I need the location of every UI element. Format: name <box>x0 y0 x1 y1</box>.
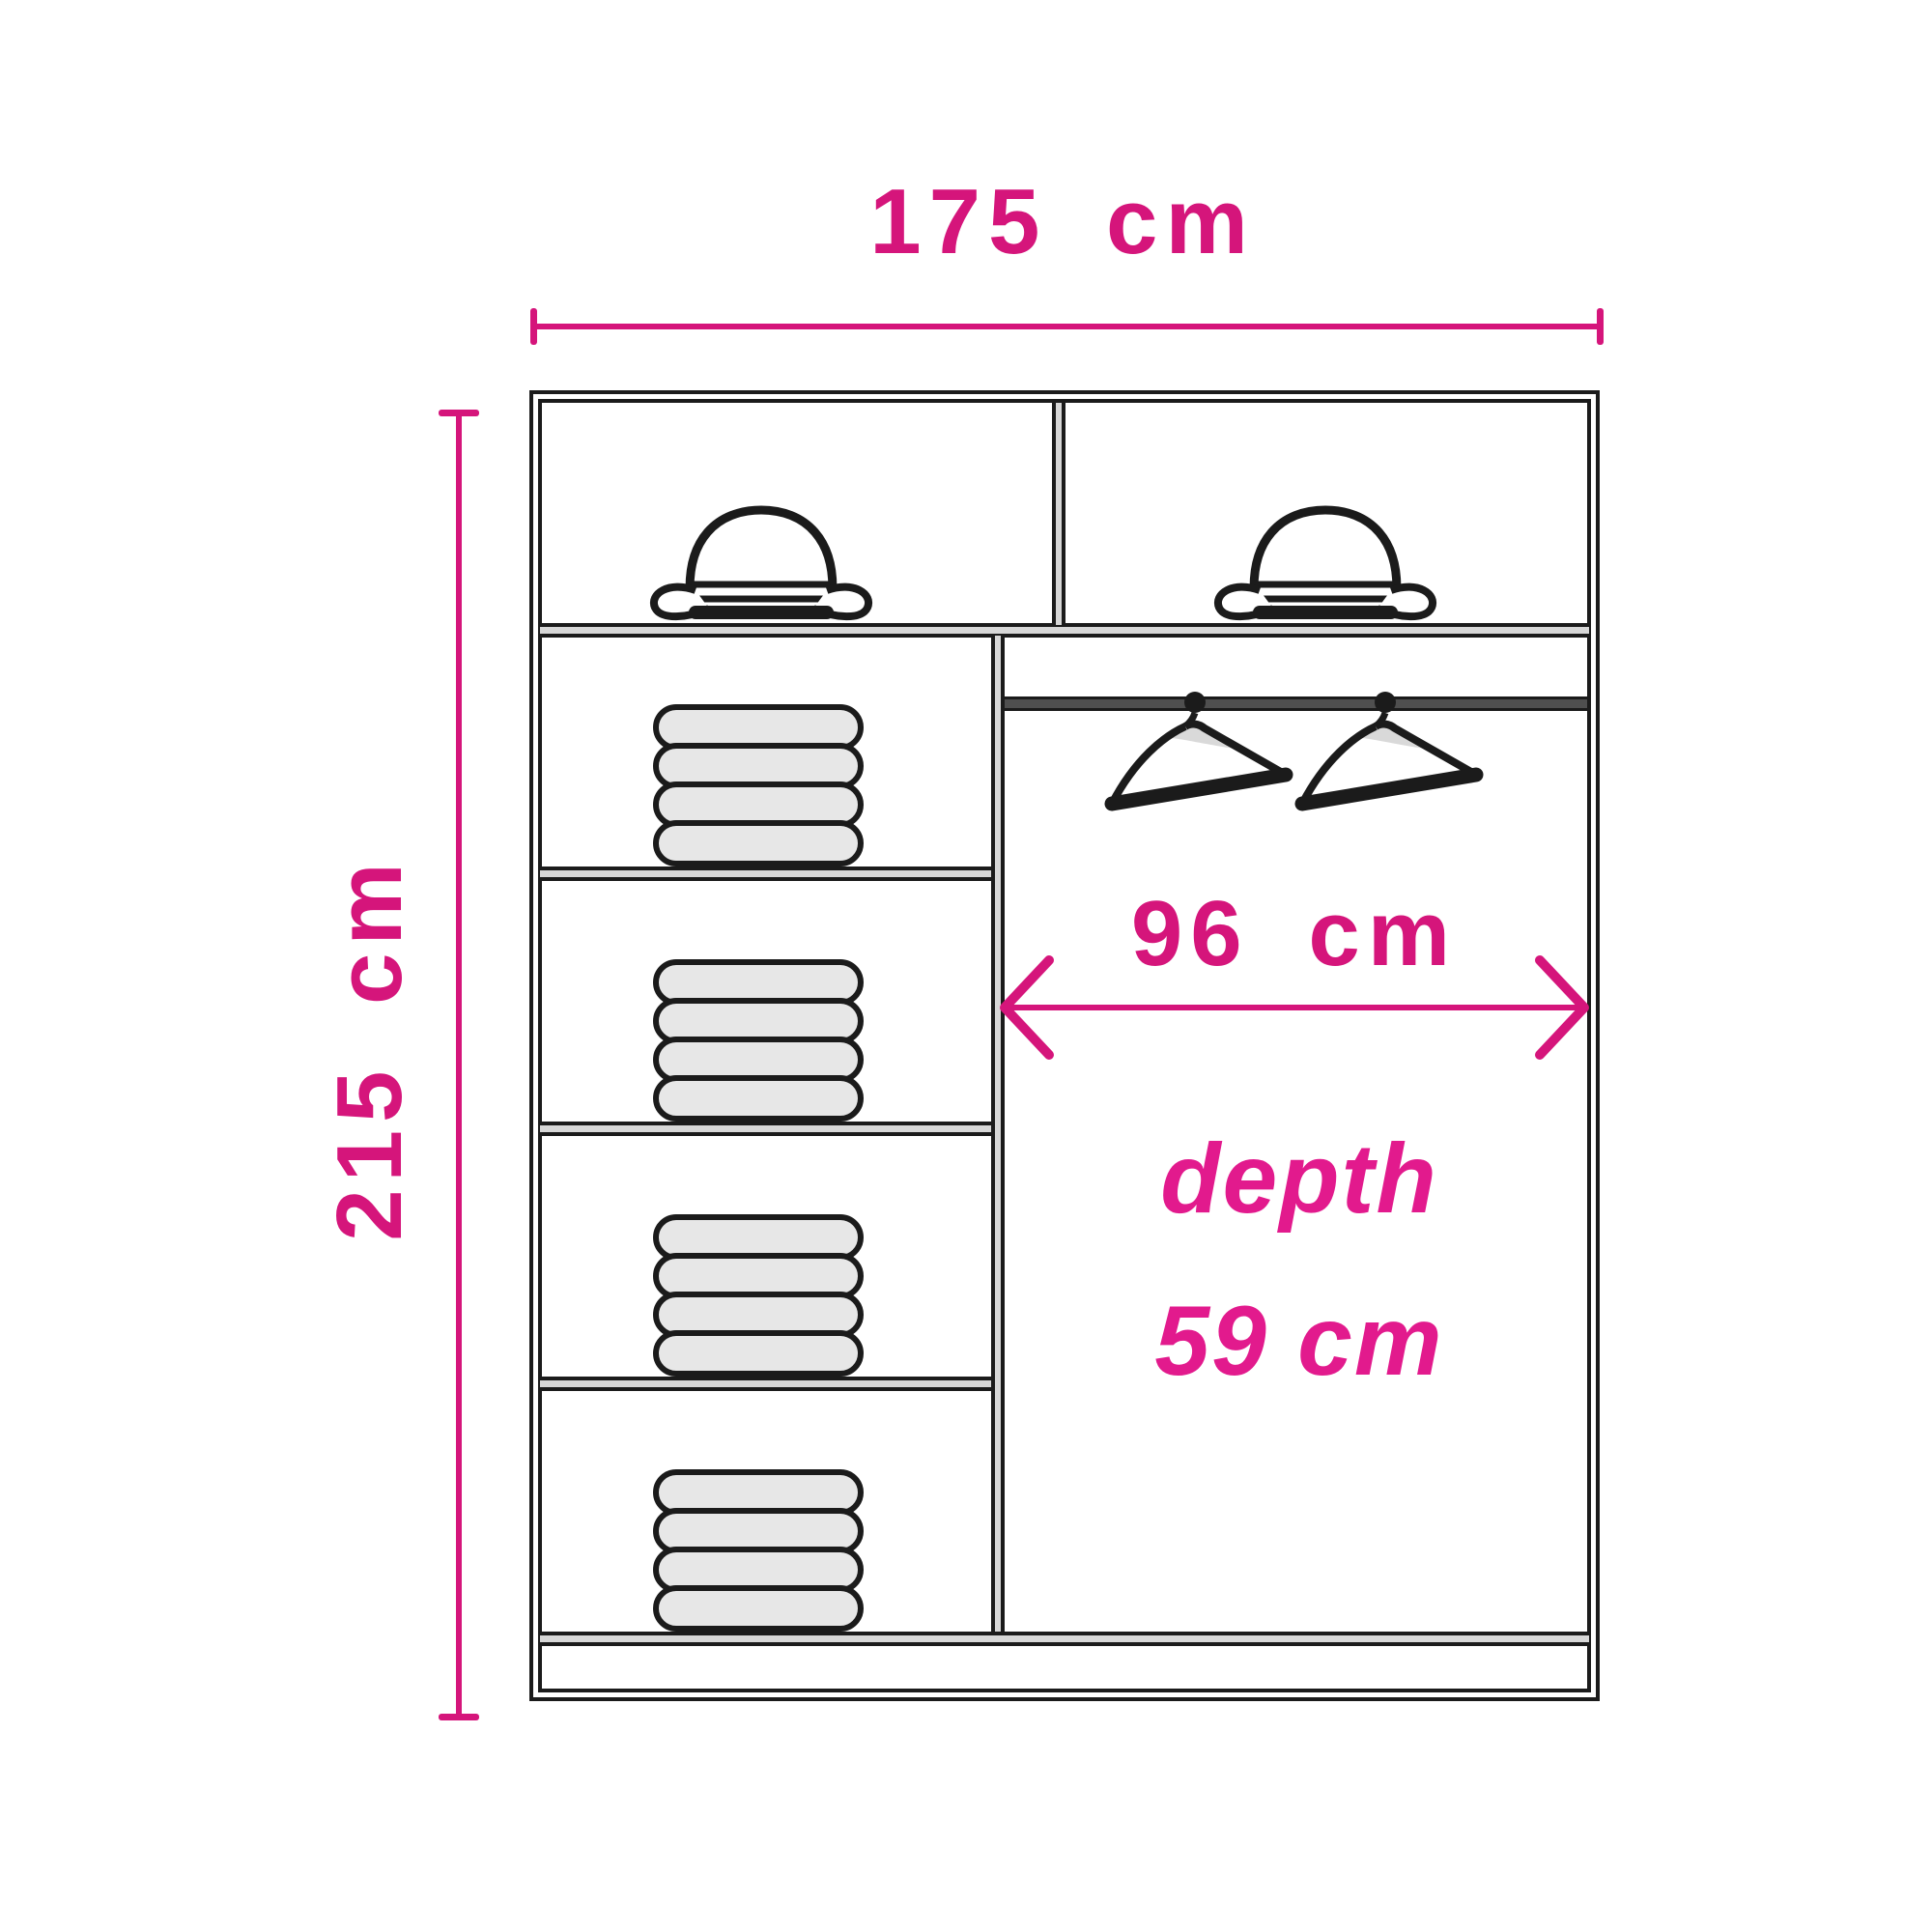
folded-clothes-stack-1 <box>653 704 864 867</box>
folded-clothes-stack-2 <box>653 959 864 1122</box>
bowler-hat-icon-right <box>1209 503 1441 627</box>
shelf-3 <box>540 1377 991 1391</box>
bowler-hat-icon-left <box>645 503 877 627</box>
height-dimension-label: 215 cm <box>317 855 423 1241</box>
top-compartment-divider <box>1052 403 1065 625</box>
folded-item <box>653 1585 864 1632</box>
inner-width-dimension-label: 96 cm <box>1005 881 1584 987</box>
inner-width-arrowhead-right <box>1532 954 1590 1061</box>
inner-width-dimension-line <box>1010 1005 1578 1010</box>
folded-item <box>653 820 864 867</box>
bottom-plinth <box>540 1632 1589 1646</box>
width-dimension-tick-right <box>1597 308 1604 345</box>
height-dimension-tick-top <box>439 410 479 416</box>
shelf-1 <box>540 867 991 881</box>
folded-item <box>653 1330 864 1377</box>
width-dimension-label: 175 cm <box>628 169 1497 275</box>
folded-clothes-stack-3 <box>653 1214 864 1377</box>
width-dimension-line <box>533 324 1600 329</box>
shelf-2 <box>540 1122 991 1136</box>
width-dimension-tick-left <box>530 308 537 345</box>
depth-label: depth <box>1009 1122 1589 1236</box>
inner-width-arrowhead-left <box>999 954 1057 1061</box>
wardrobe-dimension-diagram: 175 cm 215 cm <box>0 0 1932 1932</box>
clothes-hanger-icon-1 <box>1096 690 1304 835</box>
height-dimension-line <box>456 412 462 1719</box>
folded-item <box>653 1075 864 1122</box>
clothes-hanger-icon-2 <box>1287 690 1494 835</box>
folded-clothes-stack-4 <box>653 1469 864 1632</box>
height-dimension-tick-bottom <box>439 1714 479 1720</box>
center-divider <box>991 636 1005 1633</box>
depth-value-label: 59 cm <box>1009 1285 1589 1398</box>
